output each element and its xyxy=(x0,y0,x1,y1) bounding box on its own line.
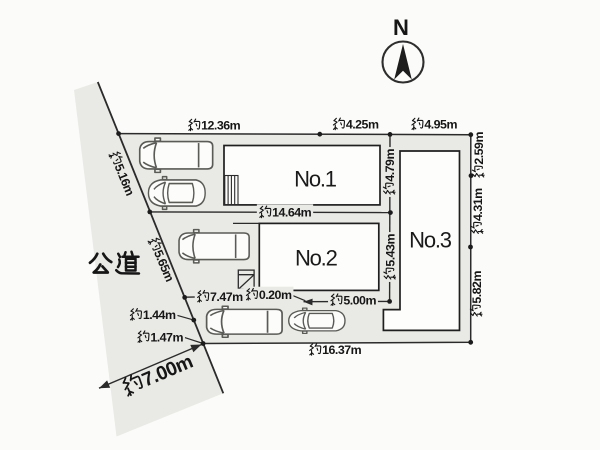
svg-text:No.2: No.2 xyxy=(295,246,338,271)
svg-text:N: N xyxy=(393,15,409,40)
svg-text:7.47m: 7.47m xyxy=(210,290,243,304)
svg-text:No.1: No.1 xyxy=(294,166,337,191)
svg-text:16.37m: 16.37m xyxy=(322,343,362,357)
svg-text:5.43m: 5.43m xyxy=(383,234,397,267)
svg-text:4.25m: 4.25m xyxy=(346,117,379,131)
svg-text:4.31m: 4.31m xyxy=(471,188,485,221)
svg-text:1.44m: 1.44m xyxy=(143,308,176,322)
svg-text:5.00m: 5.00m xyxy=(343,293,376,307)
svg-text:4.95m: 4.95m xyxy=(424,117,457,131)
svg-text:12.36m: 12.36m xyxy=(201,118,241,132)
svg-text:1.47m: 1.47m xyxy=(150,330,183,344)
svg-text:14.64m: 14.64m xyxy=(272,205,312,219)
svg-text:2.59m: 2.59m xyxy=(472,132,486,165)
svg-text:5.82m: 5.82m xyxy=(470,271,484,304)
svg-text:0.20m: 0.20m xyxy=(259,288,292,302)
svg-text:No.3: No.3 xyxy=(409,228,452,253)
svg-text:4.79m: 4.79m xyxy=(383,149,397,182)
